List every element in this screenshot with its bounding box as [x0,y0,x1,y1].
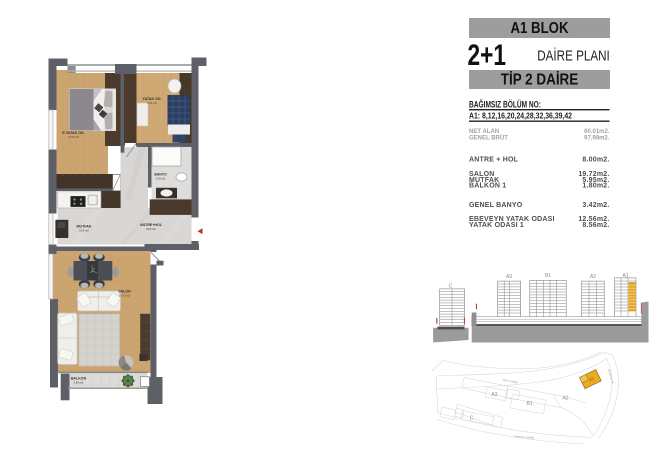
svg-text:ANTRE + HOL: ANTRE + HOL [469,157,519,164]
svg-text:BALKON 1: BALKON 1 [469,183,506,190]
svg-text:YATAK OD.: YATAK OD. [143,97,162,101]
svg-text:SALON: SALON [118,290,131,294]
svg-text:A1: A1 [622,273,628,279]
svg-text:97.98m2.: 97.98m2. [584,136,610,142]
svg-text:B1: B1 [545,273,551,279]
svg-text:GENEL BANYO: GENEL BANYO [469,202,523,209]
svg-text:60.01m2.: 60.01m2. [584,129,610,135]
svg-text:BANYO: BANYO [154,173,167,177]
svg-text:3.42m2.: 3.42m2. [582,202,609,209]
svg-text:8.00 m2: 8.00 m2 [146,227,156,231]
svg-text:8.56m2.: 8.56m2. [582,222,609,229]
svg-text:5.95 m2: 5.95 m2 [79,228,89,232]
svg-text:NET ALAN: NET ALAN [469,129,499,135]
svg-text:19.72 m2: 19.72 m2 [119,293,131,297]
svg-text:A1: 8,12,16,20,24,28,32,36,39,: A1: 8,12,16,20,24,28,32,36,39,42 [469,111,572,121]
svg-text:1.80 m2: 1.80 m2 [74,380,84,384]
svg-text:3.42 m2: 3.42 m2 [156,176,166,180]
svg-text:A3: A3 [506,274,512,280]
svg-text:ANTRE+HOL: ANTRE+HOL [140,223,163,227]
svg-text:TİP 2 DAİRE: TİP 2 DAİRE [501,72,579,89]
svg-text:A1 BLOK: A1 BLOK [511,20,569,37]
svg-text:DAİRE PLANI: DAİRE PLANI [537,47,610,65]
svg-text:A2: A2 [562,396,568,402]
svg-text:C: C [449,284,453,290]
svg-text:8.00m2.: 8.00m2. [582,157,609,164]
svg-text:BAĞIMSIZ BÖLÜM NO:: BAĞIMSIZ BÖLÜM NO: [469,99,541,110]
svg-text:B1: B1 [526,401,532,407]
svg-text:YATAK ODASI 1: YATAK ODASI 1 [469,222,524,229]
svg-text:MUTFAK: MUTFAK [77,225,92,229]
svg-text:BALKON: BALKON [71,377,87,381]
svg-text:8.56 m2: 8.56 m2 [147,101,157,105]
svg-text:2+1: 2+1 [468,39,507,72]
svg-text:12.56 m2: 12.56 m2 [68,135,80,139]
svg-text:GENEL BRÜT: GENEL BRÜT [469,135,508,142]
svg-text:1.80m2.: 1.80m2. [582,183,609,190]
svg-text:A2: A2 [590,274,596,280]
svg-text:A3: A3 [491,392,497,398]
svg-text:E.YATAK OD.: E.YATAK OD. [62,131,84,135]
svg-text:C: C [470,416,474,422]
